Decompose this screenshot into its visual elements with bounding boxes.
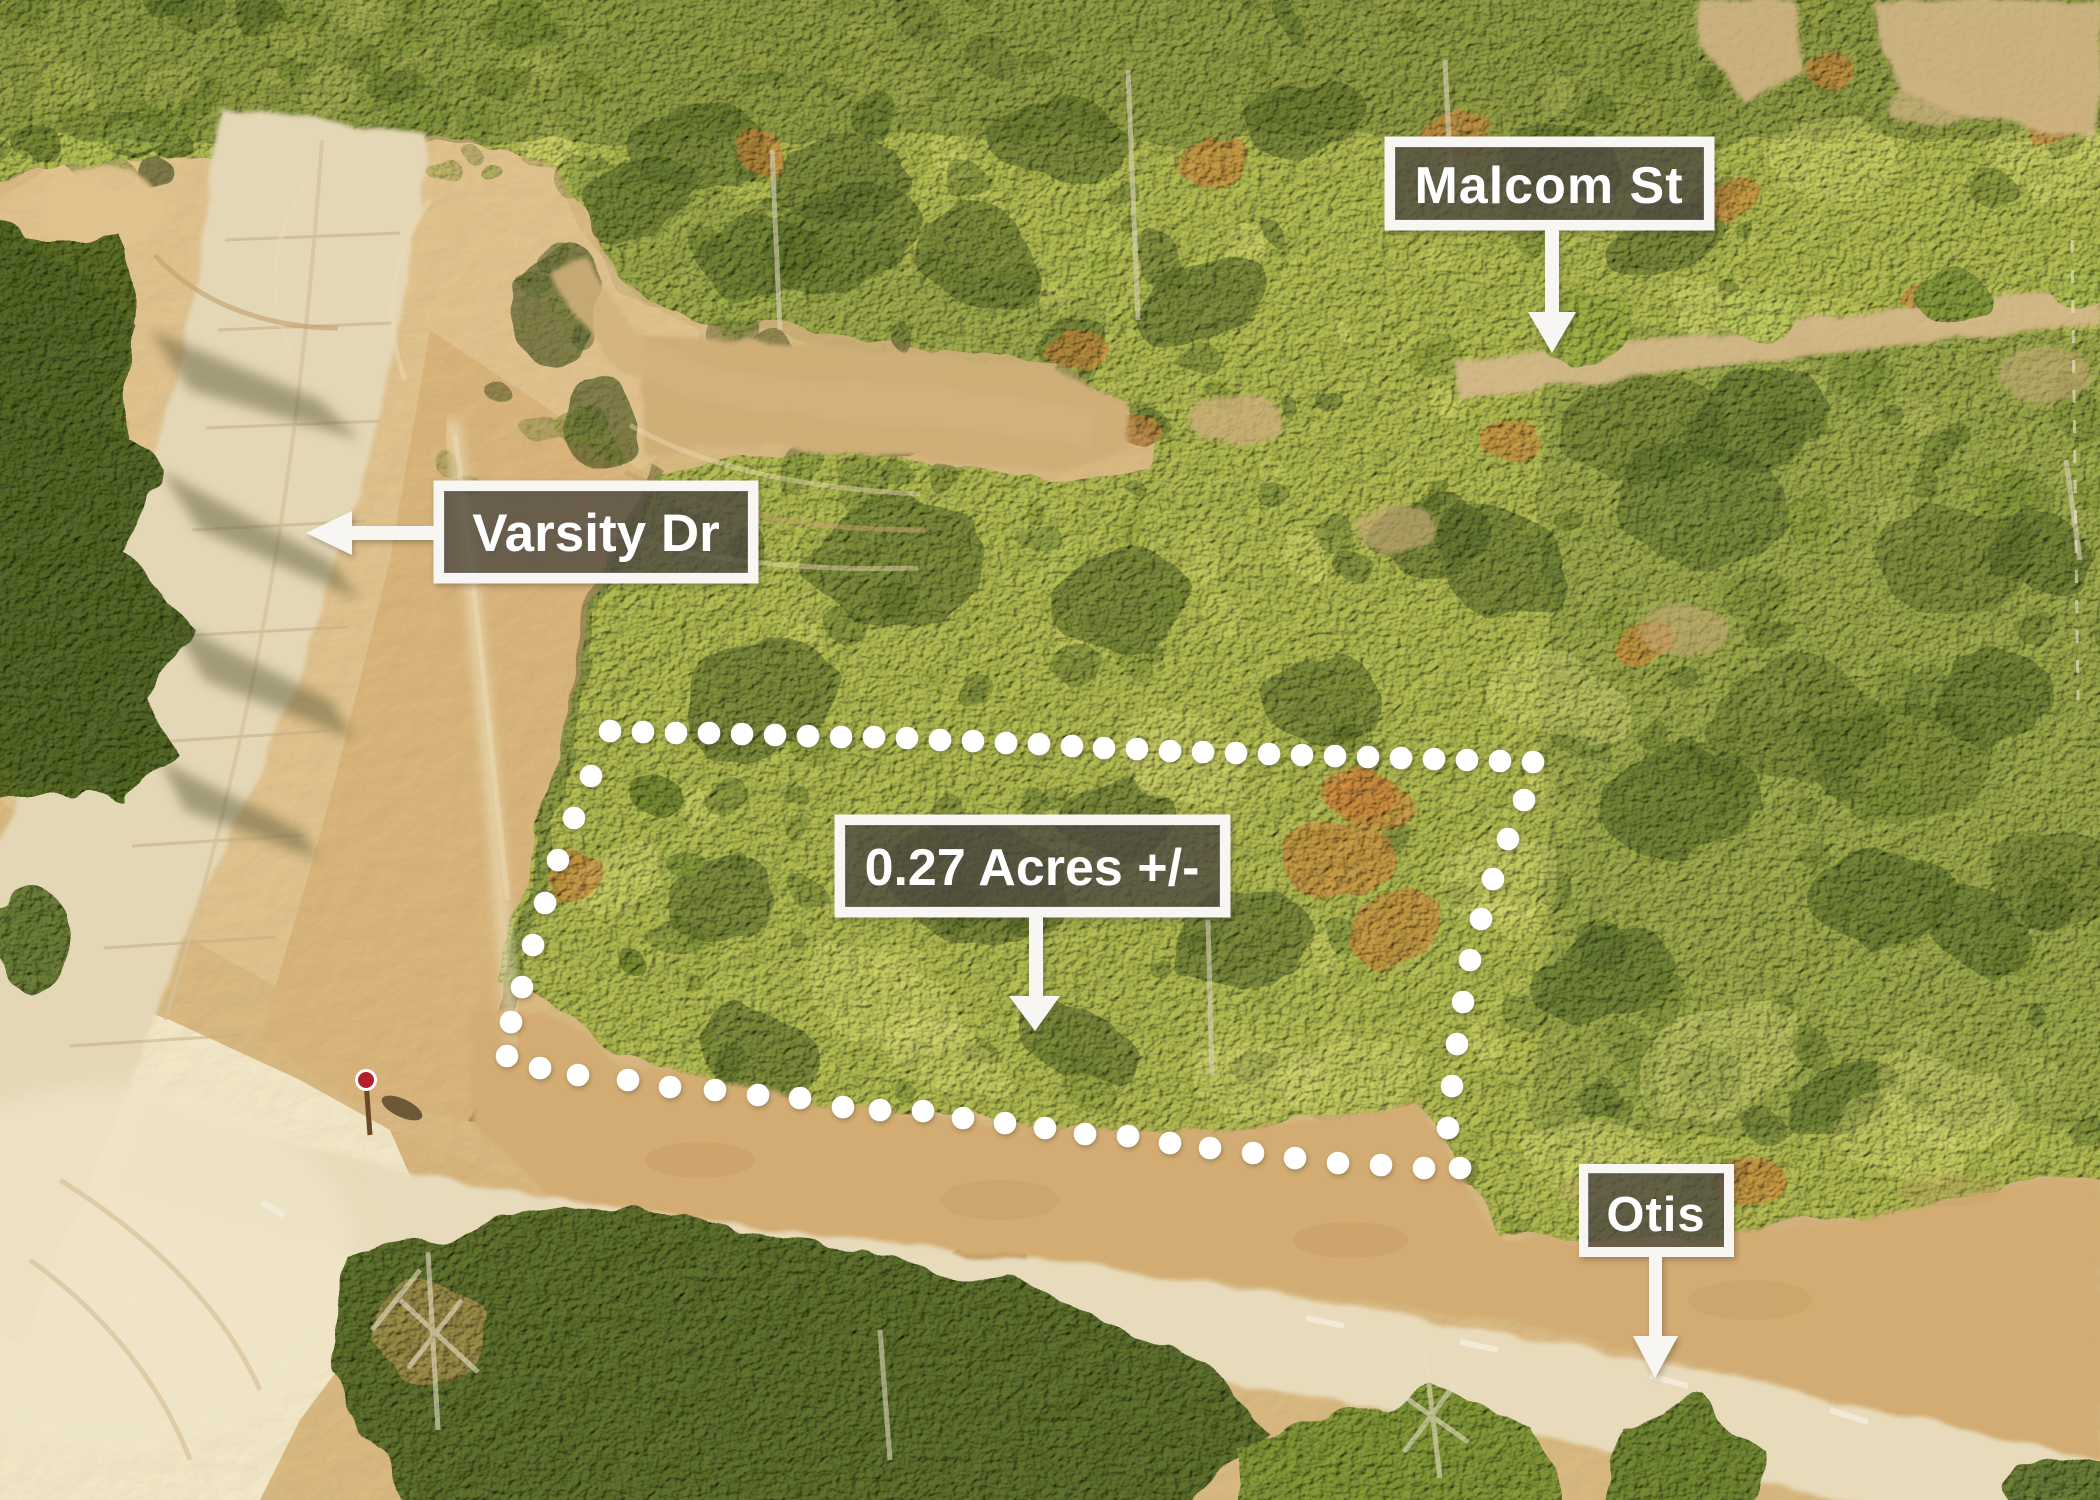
svg-text:Otis: Otis <box>1606 1188 1705 1242</box>
svg-text:Malcom St: Malcom St <box>1414 157 1683 215</box>
svg-text:Varsity Dr: Varsity Dr <box>472 504 719 563</box>
svg-text:0.27 Acres +/-: 0.27 Acres +/- <box>865 839 1200 897</box>
